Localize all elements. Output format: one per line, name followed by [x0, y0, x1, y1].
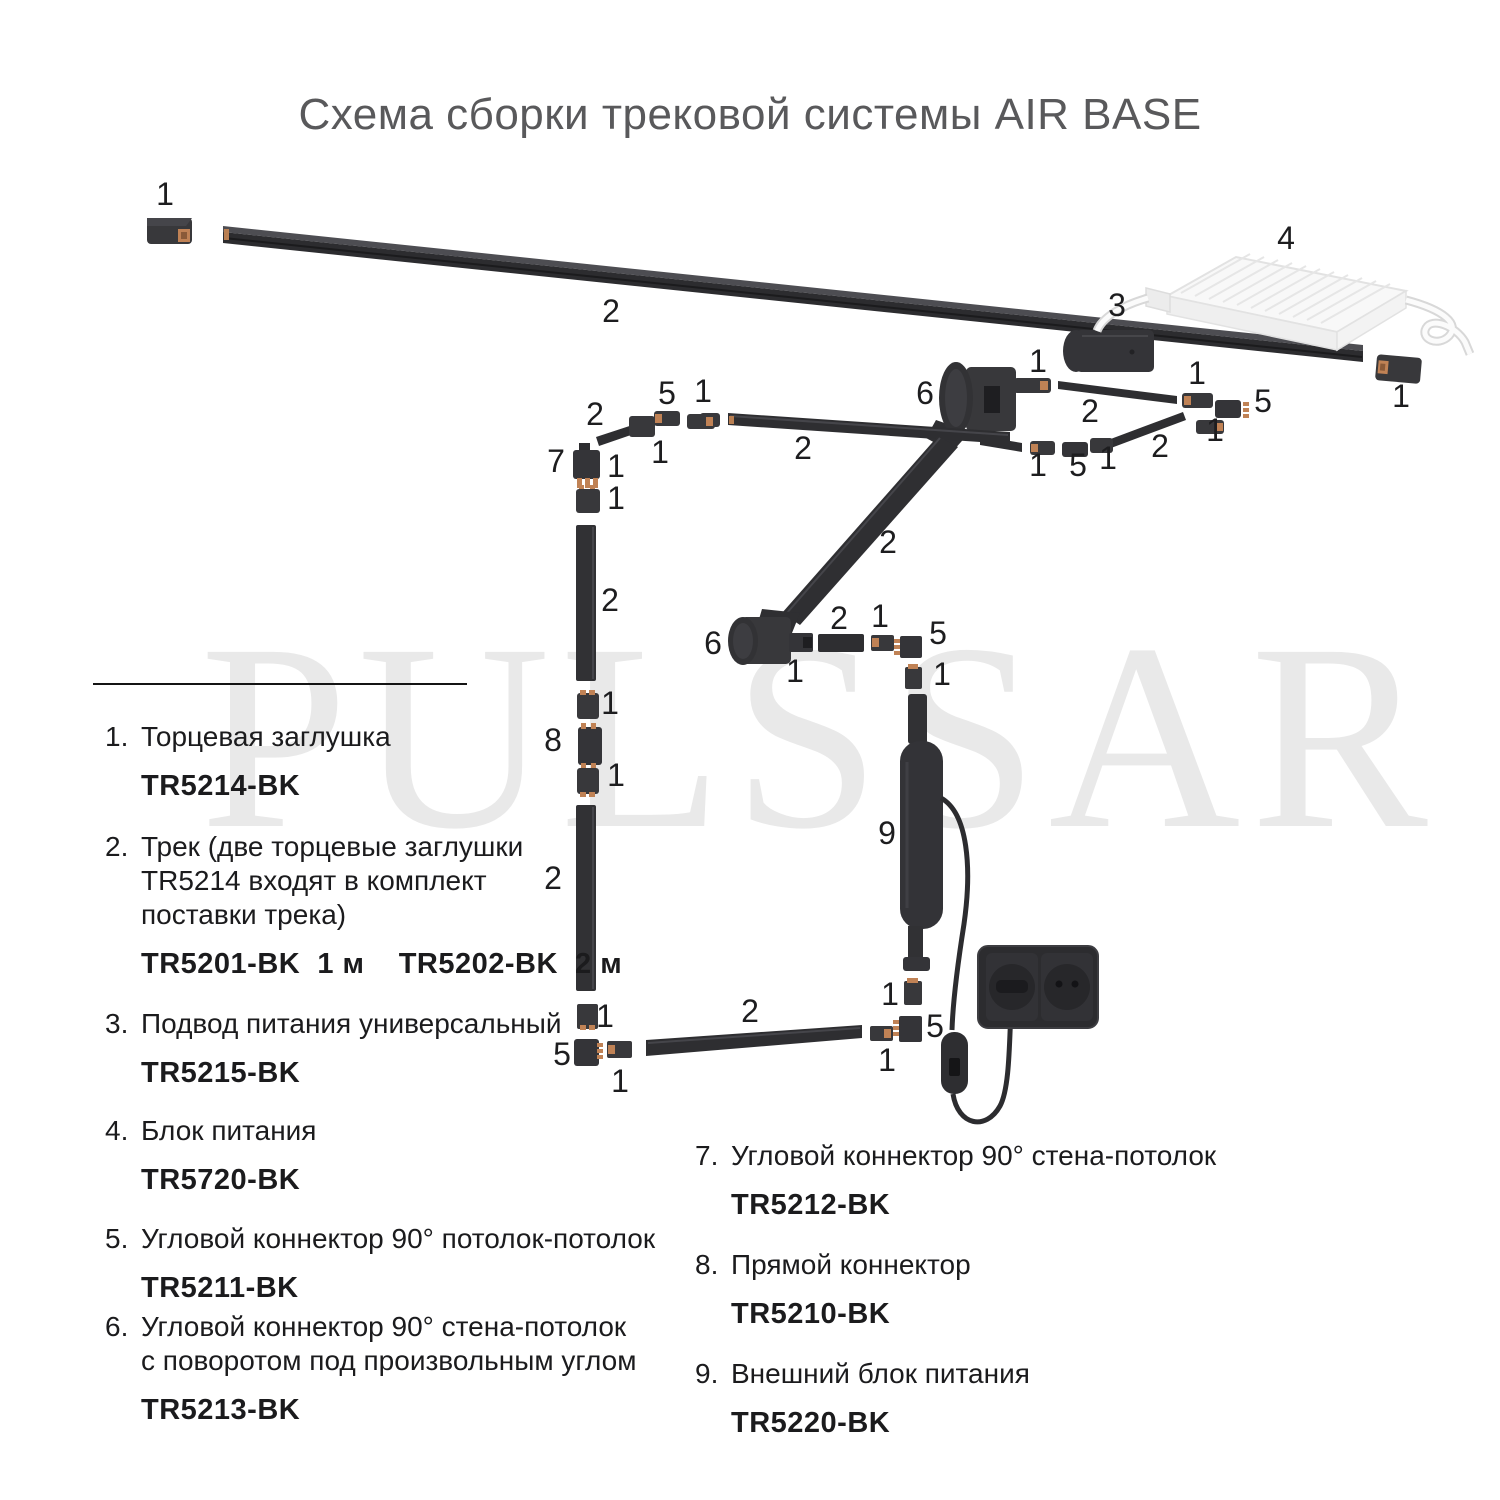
part-number-label: 2 — [830, 600, 848, 636]
part-number-label: 5 — [553, 1036, 571, 1072]
part-number-label: 1 — [601, 685, 619, 721]
bottom-track — [646, 1025, 862, 1056]
part-number-label: 1 — [1099, 440, 1117, 476]
plug-icon — [996, 980, 1028, 993]
external-psu — [900, 694, 943, 971]
part-number-label: 1 — [694, 373, 712, 409]
part-number-label: 5 — [929, 615, 947, 651]
part-number-label: 1 — [651, 434, 669, 470]
part-number-label: 3 — [1108, 287, 1126, 323]
part-number-label: 2 — [586, 396, 604, 432]
part-number-label: 5 — [658, 375, 676, 411]
lower-chain — [818, 634, 922, 689]
part-number-label: 2 — [602, 293, 620, 329]
part-number-label: 1 — [1029, 447, 1047, 483]
part-number-label: 1 — [611, 1063, 629, 1099]
part-number-label: 1 — [933, 656, 951, 692]
part-number-label: 1 — [1206, 412, 1224, 448]
part-number-label: 6 — [916, 375, 934, 411]
part-number-label: 1 — [596, 998, 614, 1034]
part-number-label: 1 — [1188, 355, 1206, 391]
part-number-label: 1 — [786, 653, 804, 689]
wall-socket — [978, 946, 1098, 1028]
part-number-label: 9 — [878, 815, 896, 851]
end-cap-icon — [147, 218, 192, 244]
part-number-label: 5 — [1069, 447, 1087, 483]
part-number-label: 4 — [1277, 220, 1295, 256]
part-number-label: 2 — [601, 582, 619, 618]
left-column — [576, 485, 602, 991]
part-number-label: 1 — [1392, 378, 1410, 414]
part-number-label: 1 — [878, 1042, 896, 1078]
part-number-label: 8 — [544, 722, 562, 758]
legend-divider — [93, 683, 467, 685]
part-number-label: 1 — [871, 598, 889, 634]
assembly-diagram: 1234112151215162152171122181261215191511… — [0, 0, 1500, 1500]
part-number-label: 1 — [607, 480, 625, 516]
part-number-label: 7 — [547, 443, 565, 479]
part-number-label: 1 — [1029, 343, 1047, 379]
page-title: Схема сборки трековой системы AIR BASE — [0, 90, 1500, 140]
part-number-label: 2 — [879, 524, 897, 560]
part-number-label: 2 — [1151, 428, 1169, 464]
part-number-label: 5 — [1254, 383, 1272, 419]
part-number-label: 1 — [607, 757, 625, 793]
part-number-label: 2 — [741, 993, 759, 1029]
part-number-label: 2 — [794, 430, 812, 466]
part-number-label: 1 — [607, 448, 625, 484]
part-number-label: 5 — [926, 1008, 944, 1044]
assembly-scheme-page: PULSSAR Схема сборки трековой системы AI… — [0, 0, 1500, 1500]
part-number-label: 2 — [544, 860, 562, 896]
part-number-label: 1 — [881, 976, 899, 1012]
part-number-label: 6 — [704, 625, 722, 661]
part-number-label: 2 — [1081, 393, 1099, 429]
power-feed — [1063, 330, 1154, 372]
part-number-label: 1 — [156, 176, 174, 212]
